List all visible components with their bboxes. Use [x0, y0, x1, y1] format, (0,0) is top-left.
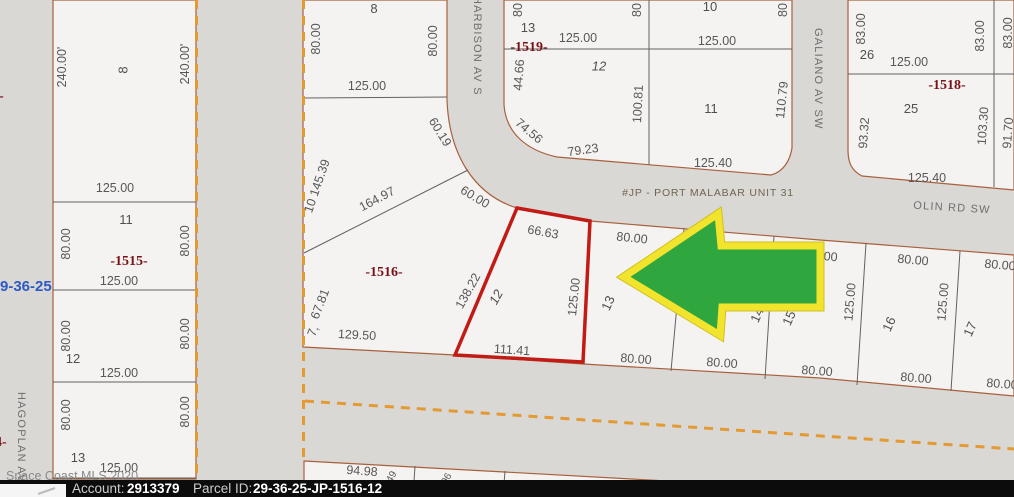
svg-text:13: 13 [71, 450, 85, 465]
svg-text:83.00: 83.00 [973, 20, 987, 51]
svg-text:125.00: 125.00 [100, 274, 138, 288]
svg-text:80.00: 80.00 [801, 363, 833, 379]
svg-text:103.30: 103.30 [975, 106, 992, 145]
svg-text:80.00: 80.00 [59, 320, 73, 351]
svg-text:12: 12 [592, 59, 607, 74]
svg-text:93.32: 93.32 [856, 117, 872, 149]
svg-text:8: 8 [370, 1, 377, 16]
svg-text:26: 26 [860, 47, 874, 62]
svg-text:83.00: 83.00 [1001, 17, 1014, 48]
svg-text:12: 12 [66, 351, 80, 366]
svg-text:80.00: 80.00 [309, 23, 323, 54]
svg-text:94.98: 94.98 [346, 463, 378, 479]
svg-text:125.00: 125.00 [559, 31, 597, 45]
svg-text:2913379: 2913379 [127, 481, 180, 496]
svg-text:83.00: 83.00 [854, 13, 868, 44]
svg-text:10: 10 [703, 0, 717, 14]
svg-text:80.00: 80.00 [984, 257, 1014, 274]
svg-text:100.81: 100.81 [630, 84, 646, 123]
svg-text:240.00': 240.00' [178, 44, 192, 85]
svg-text:125.00: 125.00 [890, 55, 928, 69]
svg-text:91.70: 91.70 [1000, 117, 1014, 149]
svg-text:80: 80 [511, 3, 525, 17]
svg-text:80: 80 [630, 3, 644, 17]
svg-text:125.40: 125.40 [694, 156, 732, 170]
svg-text:80.00: 80.00 [59, 399, 73, 430]
svg-text:Parcel ID:: Parcel ID: [193, 481, 252, 496]
svg-text:-1518-: -1518- [928, 78, 966, 93]
svg-text:125.00: 125.00 [100, 366, 138, 380]
svg-text:80: 80 [776, 3, 790, 17]
svg-text:80.00: 80.00 [900, 370, 932, 386]
svg-text:80.00: 80.00 [897, 252, 929, 269]
svg-text:80.00: 80.00 [706, 355, 738, 371]
svg-text:Account:: Account: [72, 481, 125, 496]
svg-text:29-36-25-JP-1516-12: 29-36-25-JP-1516-12 [253, 481, 382, 496]
svg-text:125.40: 125.40 [908, 171, 946, 185]
svg-text:125.00: 125.00 [96, 181, 134, 195]
svg-text:25: 25 [904, 101, 918, 116]
svg-text:8: 8 [116, 66, 131, 73]
svg-text:80.00: 80.00 [986, 376, 1014, 392]
svg-text:-1516-: -1516- [365, 265, 403, 280]
svg-text:80.00: 80.00 [178, 396, 192, 427]
svg-text:125.00: 125.00 [348, 79, 386, 93]
svg-text:11: 11 [704, 101, 718, 116]
svg-text:GALIANO AV SW: GALIANO AV SW [812, 28, 824, 130]
svg-text:44.66: 44.66 [511, 59, 527, 91]
svg-text:11: 11 [119, 212, 133, 227]
svg-text:80.00: 80.00 [178, 225, 192, 256]
svg-text:-1519-: -1519- [510, 40, 548, 55]
svg-text:14-: 14- [0, 435, 7, 450]
svg-text:#JP - PORT MALABAR UNIT 31: #JP - PORT MALABAR UNIT 31 [622, 187, 794, 199]
svg-text:80.00: 80.00 [426, 25, 440, 56]
svg-text:HARBISON AV S: HARBISON AV S [471, 0, 483, 96]
svg-text:111.41: 111.41 [493, 342, 530, 359]
svg-text:129.50: 129.50 [338, 327, 377, 343]
svg-text:13: 13 [521, 20, 535, 35]
svg-text:9-36-25: 9-36-25 [0, 278, 52, 295]
svg-text:80.00: 80.00 [178, 318, 192, 349]
svg-text:240.00': 240.00' [55, 47, 69, 88]
svg-text:80.00: 80.00 [620, 351, 652, 367]
svg-text:125.00: 125.00 [698, 34, 736, 48]
svg-text:-1515-: -1515- [110, 254, 148, 269]
svg-text:-: - [0, 89, 4, 104]
svg-text:80.00: 80.00 [59, 228, 73, 259]
